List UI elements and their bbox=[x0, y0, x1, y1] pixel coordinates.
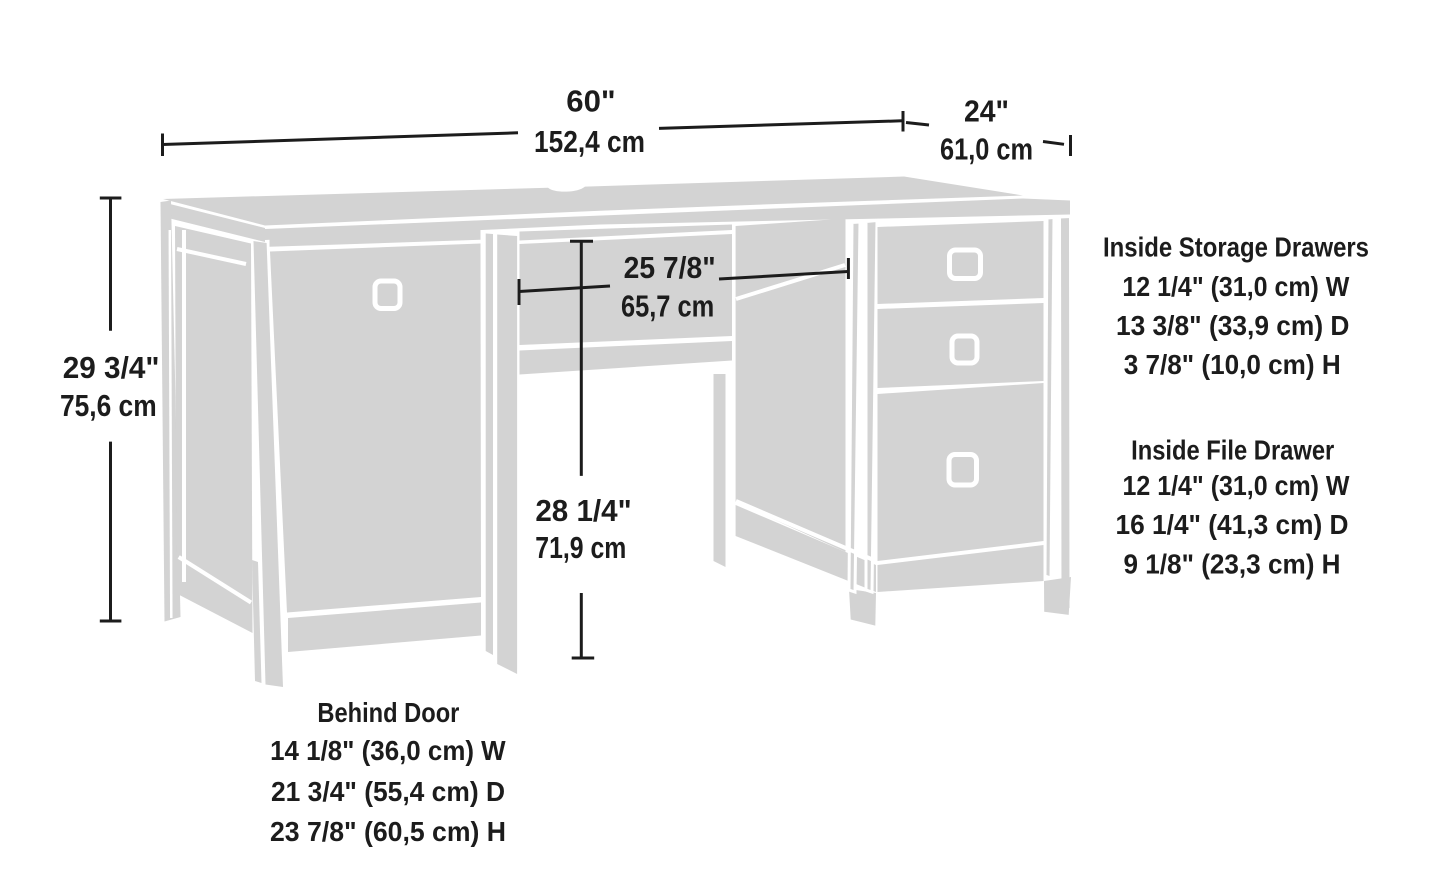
svg-text:61,0 cm: 61,0 cm bbox=[940, 132, 1033, 167]
svg-text:14 1/8" (36,0 cm) W: 14 1/8" (36,0 cm) W bbox=[270, 735, 506, 766]
svg-text:65,7 cm: 65,7 cm bbox=[621, 289, 714, 324]
svg-text:25 7/8": 25 7/8" bbox=[624, 250, 716, 285]
svg-text:75,6 cm: 75,6 cm bbox=[60, 388, 157, 423]
svg-text:16 1/4" (41,3 cm) D: 16 1/4" (41,3 cm) D bbox=[1116, 509, 1349, 540]
svg-text:3 7/8" (10,0 cm) H: 3 7/8" (10,0 cm) H bbox=[1124, 349, 1341, 380]
svg-text:Inside File Drawer: Inside File Drawer bbox=[1131, 435, 1334, 466]
svg-text:29 3/4": 29 3/4" bbox=[63, 350, 160, 385]
svg-text:71,9 cm: 71,9 cm bbox=[535, 530, 626, 565]
svg-text:24": 24" bbox=[964, 94, 1009, 129]
svg-text:152,4 cm: 152,4 cm bbox=[534, 124, 645, 159]
svg-text:12 1/4" (31,0 cm) W: 12 1/4" (31,0 cm) W bbox=[1123, 470, 1350, 501]
svg-text:12 1/4" (31,0 cm) W: 12 1/4" (31,0 cm) W bbox=[1122, 271, 1349, 302]
svg-text:Inside Storage Drawers: Inside Storage Drawers bbox=[1103, 232, 1369, 263]
svg-text:9 1/8" (23,3 cm) H: 9 1/8" (23,3 cm) H bbox=[1124, 549, 1341, 580]
svg-text:60": 60" bbox=[566, 84, 615, 119]
svg-text:Behind Door: Behind Door bbox=[317, 697, 459, 728]
svg-text:23 7/8" (60,5 cm) H: 23 7/8" (60,5 cm) H bbox=[270, 816, 506, 847]
svg-text:21 3/4" (55,4 cm) D: 21 3/4" (55,4 cm) D bbox=[271, 776, 505, 807]
svg-text:13 3/8" (33,9 cm) D: 13 3/8" (33,9 cm) D bbox=[1116, 310, 1350, 341]
svg-text:28 1/4": 28 1/4" bbox=[535, 493, 631, 528]
